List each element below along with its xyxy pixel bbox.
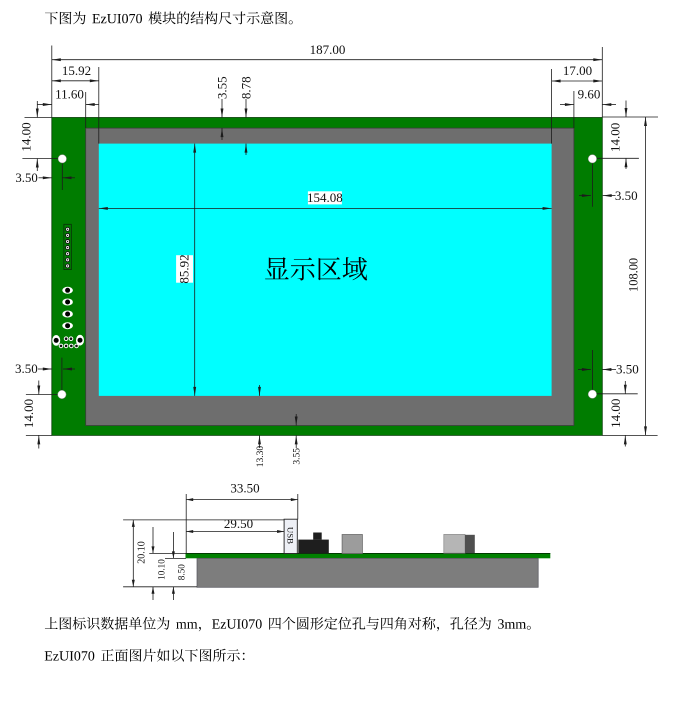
svg-text:29.50: 29.50: [224, 516, 253, 531]
svg-text:8.50: 8.50: [176, 564, 186, 580]
svg-text:3.50: 3.50: [616, 362, 639, 377]
svg-text:9.60: 9.60: [578, 87, 601, 102]
svg-text:15.92: 15.92: [62, 63, 91, 78]
svg-text:8.78: 8.78: [238, 76, 253, 99]
svg-text:3.50: 3.50: [15, 171, 37, 185]
svg-text:13.30: 13.30: [256, 446, 266, 468]
svg-text:3.55: 3.55: [214, 76, 229, 99]
svg-text:108.00: 108.00: [627, 258, 641, 292]
svg-text:11.60: 11.60: [55, 87, 84, 102]
svg-text:3.50: 3.50: [15, 361, 38, 376]
svg-text:85.92: 85.92: [177, 254, 192, 283]
svg-text:154.08: 154.08: [307, 190, 343, 205]
svg-text:3.50: 3.50: [615, 188, 638, 203]
svg-text:14.00: 14.00: [608, 399, 623, 428]
svg-text:17.00: 17.00: [563, 63, 592, 78]
svg-text:3.55: 3.55: [293, 448, 303, 465]
svg-text:14.00: 14.00: [21, 399, 36, 428]
svg-text:187.00: 187.00: [310, 42, 346, 57]
svg-text:14.00: 14.00: [608, 123, 623, 152]
svg-text:20.10: 20.10: [137, 541, 148, 564]
svg-text:33.50: 33.50: [230, 481, 259, 496]
svg-text:10.10: 10.10: [156, 559, 166, 580]
svg-text:USB: USB: [286, 527, 296, 544]
svg-text:14.00: 14.00: [19, 122, 34, 151]
